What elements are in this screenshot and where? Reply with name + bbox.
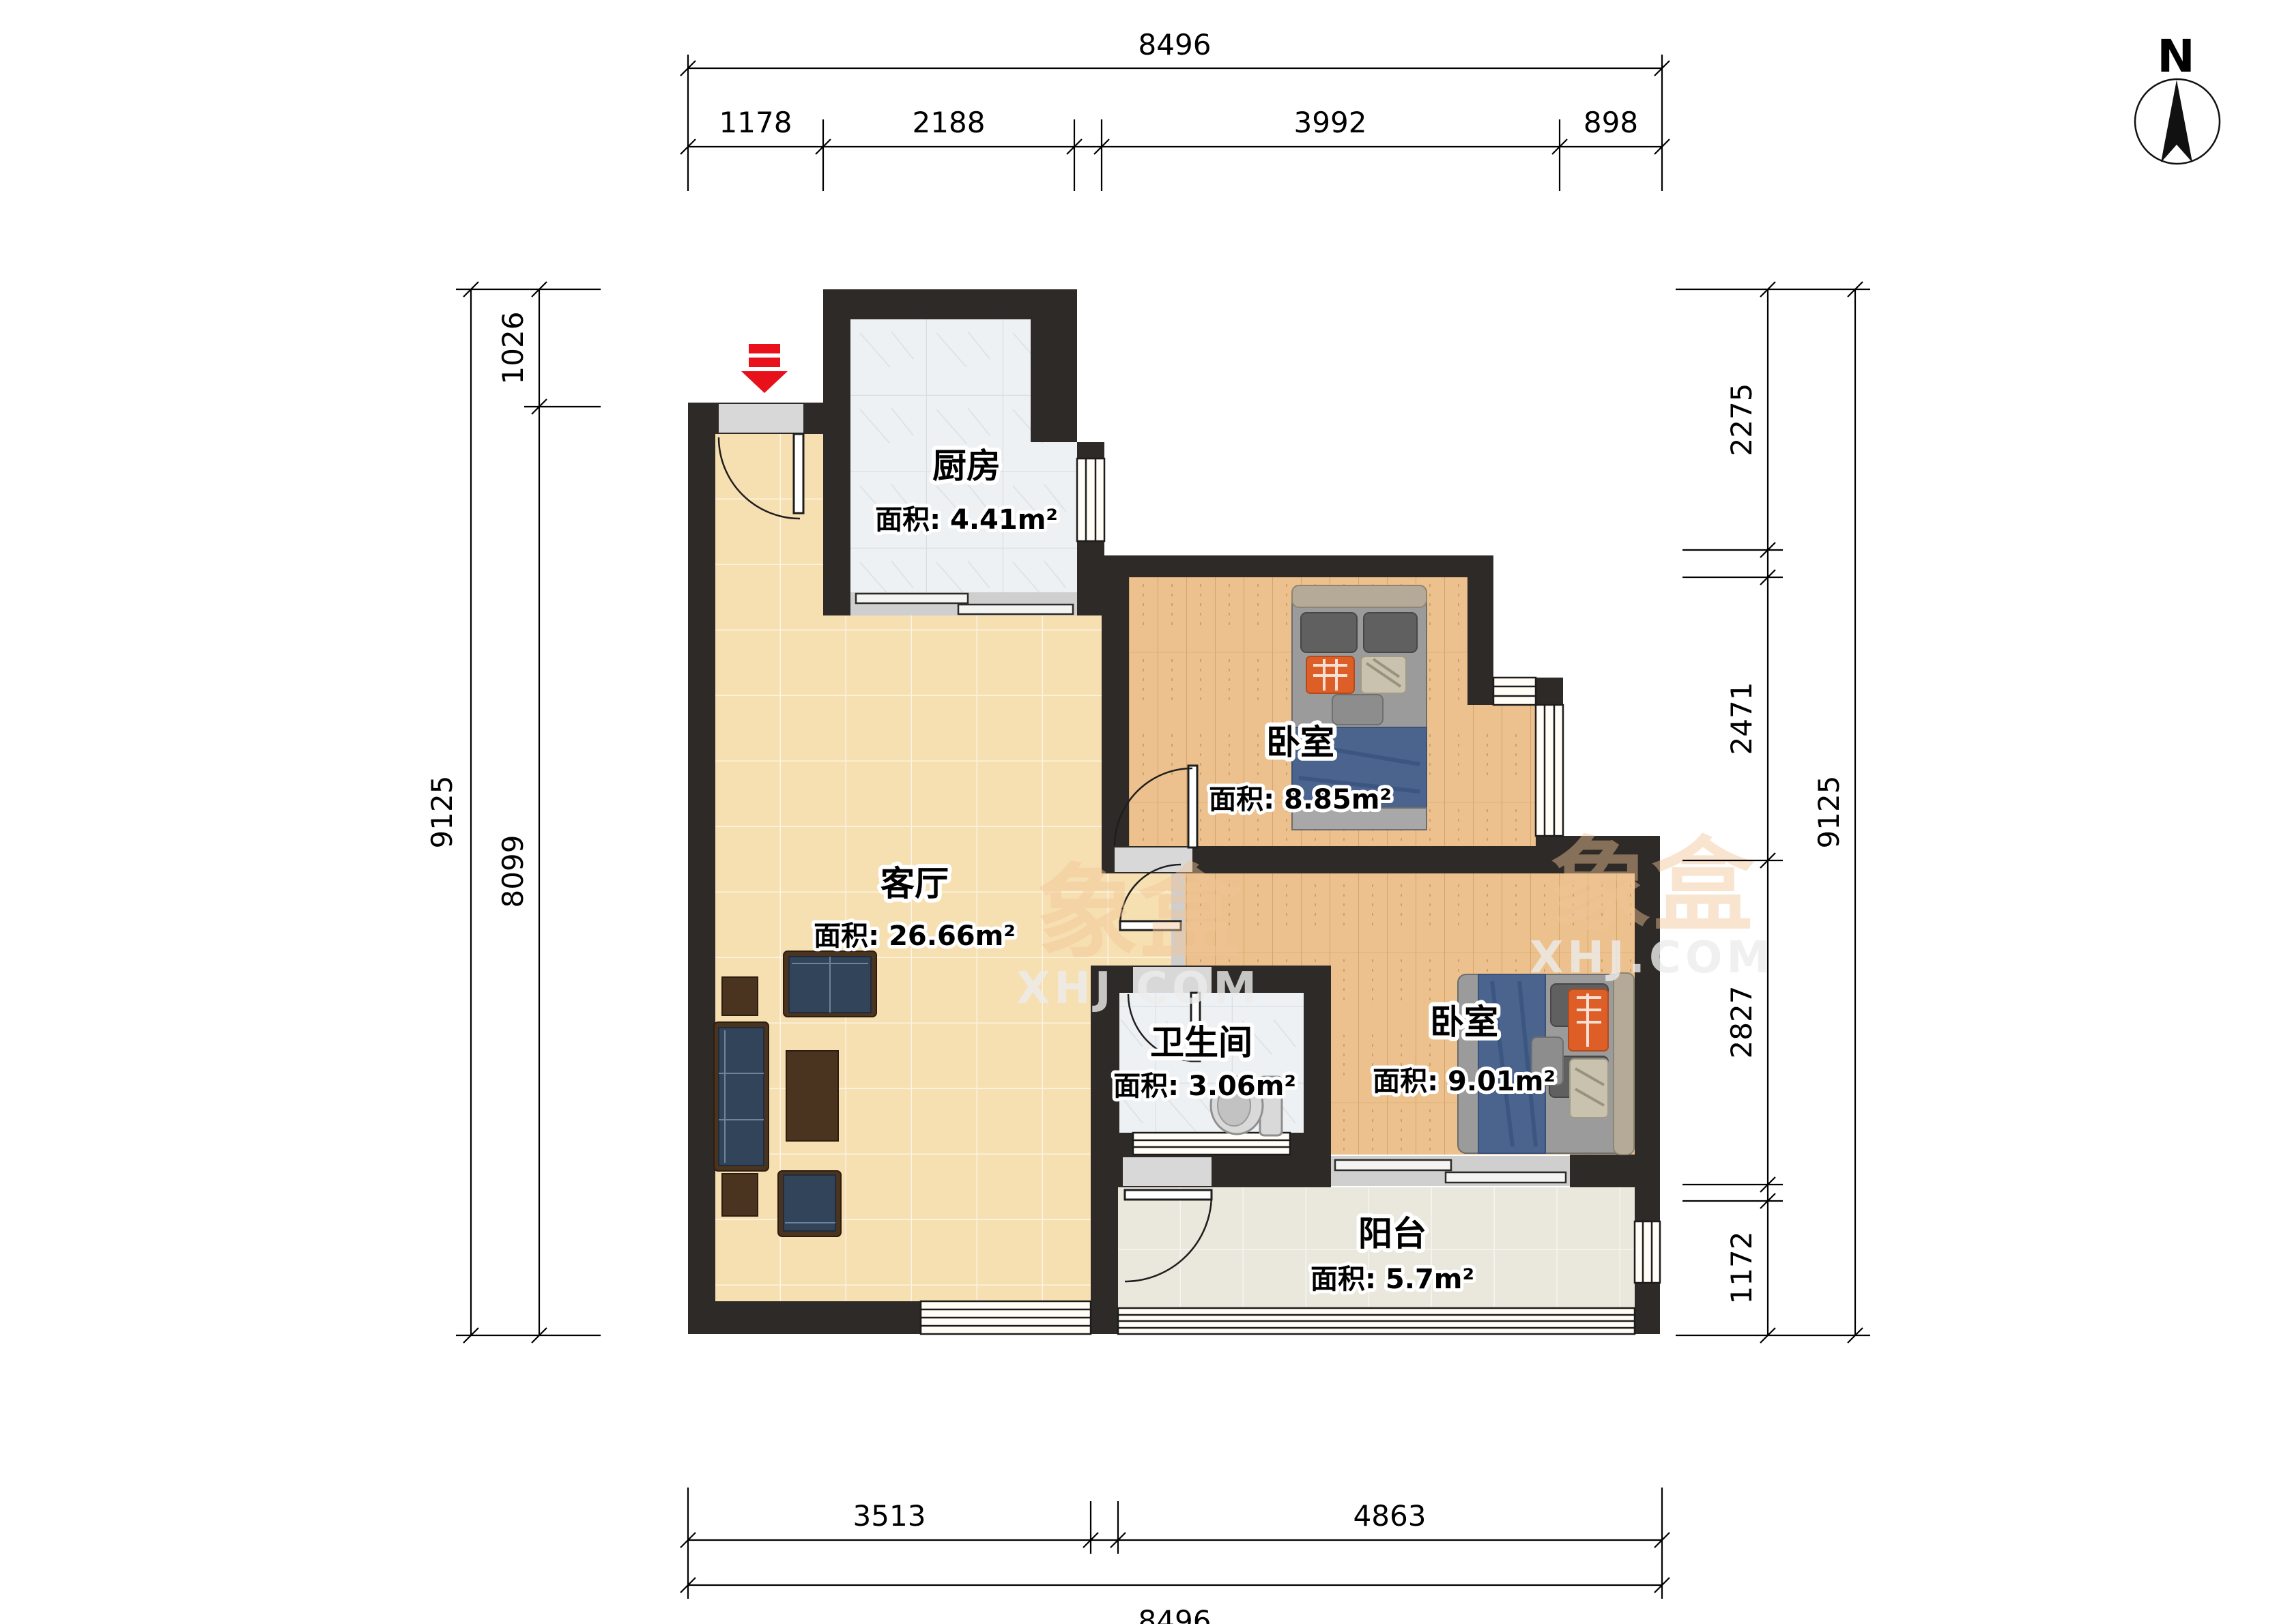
balcony-side-window: [1635, 1221, 1660, 1283]
north-compass-icon: N: [2135, 30, 2220, 164]
dim-right-total: 9125: [1812, 776, 1846, 849]
bed-bedroom2: [1458, 973, 1634, 1155]
watermark-site: XHJ.COM: [1530, 933, 1774, 983]
living-room-area: 面积: 26.66m²: [814, 920, 1016, 952]
dim-left-seg: 8099: [496, 835, 530, 908]
balcony-label: 阳台: [1358, 1214, 1427, 1253]
dim-top-seg: 1178: [719, 106, 792, 139]
entrance-arrow-icon: [741, 344, 788, 393]
kitchen-sliding-door: [850, 592, 1077, 615]
dim-top-total: 8496: [1138, 28, 1212, 61]
floorplan-page: 象盒 XHJ.COM 象盒 XHJ.COM 厨房 面积: 4.41m² 卧室 面…: [0, 0, 2292, 1624]
bedroom1-label: 卧室: [1266, 723, 1334, 762]
dim-bottom-seg: 4863: [1353, 1499, 1427, 1533]
coffee-table: [786, 1051, 838, 1141]
side-table: [722, 1174, 758, 1216]
kitchen-window: [1077, 459, 1104, 541]
watermark-site: XHJ.COM: [1016, 963, 1261, 1014]
dim-left-total: 9125: [425, 776, 459, 849]
dim-top-seg: 898: [1584, 106, 1638, 139]
kitchen-label: 厨房: [932, 446, 1001, 486]
living-room-window: [921, 1301, 1091, 1334]
watermark-brand: 象盒: [1036, 854, 1242, 973]
bathroom-label: 卫生间: [1150, 1023, 1252, 1062]
dim-top-seg: 3992: [1294, 106, 1367, 139]
dim-bottom-total: 8496: [1138, 1604, 1212, 1624]
bedroom2-label: 卧室: [1430, 1002, 1498, 1042]
dim-bottom-seg: 3513: [853, 1499, 926, 1533]
compass-label: N: [2157, 30, 2194, 83]
floorplan-canvas: 象盒 XHJ.COM 象盒 XHJ.COM 厨房 面积: 4.41m² 卧室 面…: [0, 0, 2292, 1624]
side-table: [722, 977, 758, 1015]
dim-right-seg: 2275: [1725, 383, 1758, 456]
dim-right-seg: 2827: [1725, 986, 1758, 1059]
bedroom2-area: 面积: 9.01m²: [1373, 1066, 1556, 1097]
bathroom-area: 面积: 3.06m²: [1113, 1071, 1296, 1102]
dim-top-seg: 2188: [913, 106, 986, 139]
dim-right-seg: 2471: [1725, 682, 1758, 755]
bedroom1-area: 面积: 8.85m²: [1209, 784, 1392, 815]
watermark-brand: 象盒: [1549, 827, 1755, 946]
bedroom2-sliding-door: [1331, 1156, 1570, 1186]
dim-right-seg: 1172: [1725, 1232, 1758, 1305]
kitchen-area: 面积: 4.41m²: [875, 504, 1058, 536]
balcony-area: 面积: 5.7m²: [1310, 1264, 1474, 1295]
balcony-railing: [1118, 1308, 1635, 1334]
dim-left-seg: 1026: [496, 312, 530, 385]
living-room-label: 客厅: [880, 864, 949, 903]
